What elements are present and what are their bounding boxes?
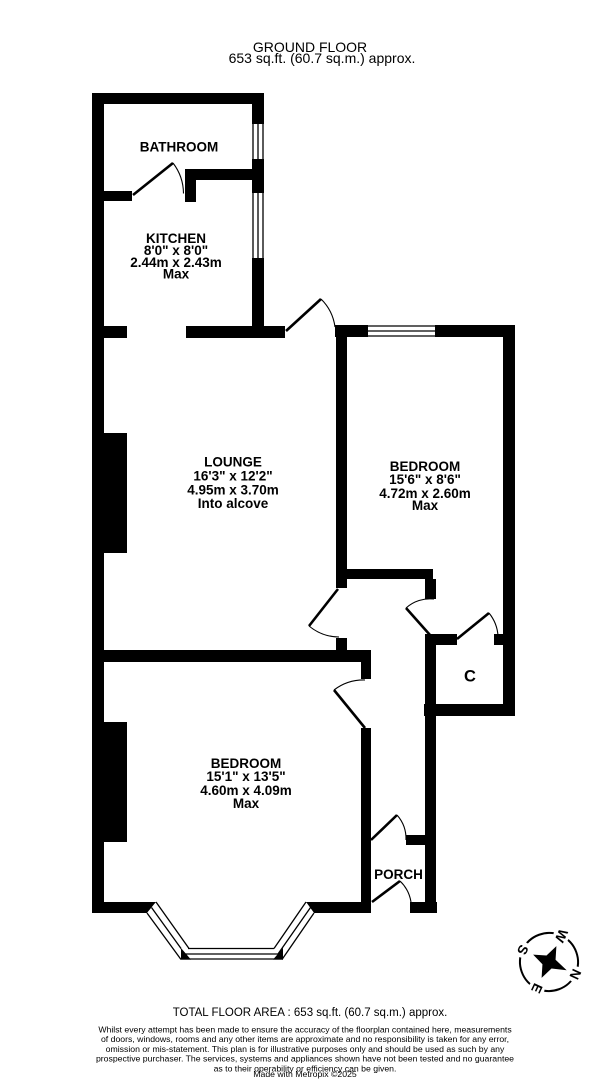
svg-text:Made with Metropix ©2025: Made with Metropix ©2025: [253, 1069, 357, 1079]
svg-text:653 sq.ft. (60.7 sq.m.) approx: 653 sq.ft. (60.7 sq.m.) approx.: [229, 50, 416, 66]
svg-text:PORCH: PORCH: [374, 867, 423, 882]
svg-text:15'6" x 8'6": 15'6" x 8'6": [389, 472, 461, 487]
svg-text:of doors, windows, rooms and a: of doors, windows, rooms and any other i…: [101, 1034, 509, 1044]
svg-text:prospective purchaser. The ser: prospective purchaser. The services, sys…: [96, 1054, 514, 1064]
svg-text:15'1" x 13'5": 15'1" x 13'5": [206, 769, 285, 784]
svg-text:C: C: [464, 668, 476, 686]
svg-text:Max: Max: [412, 498, 439, 513]
svg-text:16'3" x 12'2": 16'3" x 12'2": [193, 468, 272, 483]
svg-text:omission or mis-statement. Thi: omission or mis-statement. This plan is …: [106, 1044, 505, 1054]
svg-text:LOUNGE: LOUNGE: [204, 454, 262, 469]
svg-text:Max: Max: [163, 267, 190, 282]
svg-text:BATHROOM: BATHROOM: [140, 140, 219, 155]
svg-text:Whilst every attempt has been: Whilst every attempt has been made to en…: [98, 1025, 512, 1035]
svg-text:TOTAL FLOOR AREA : 653 sq.ft.: TOTAL FLOOR AREA : 653 sq.ft. (60.7 sq.m…: [173, 1007, 448, 1019]
svg-text:Max: Max: [233, 796, 260, 811]
svg-text:Into alcove: Into alcove: [198, 496, 269, 511]
